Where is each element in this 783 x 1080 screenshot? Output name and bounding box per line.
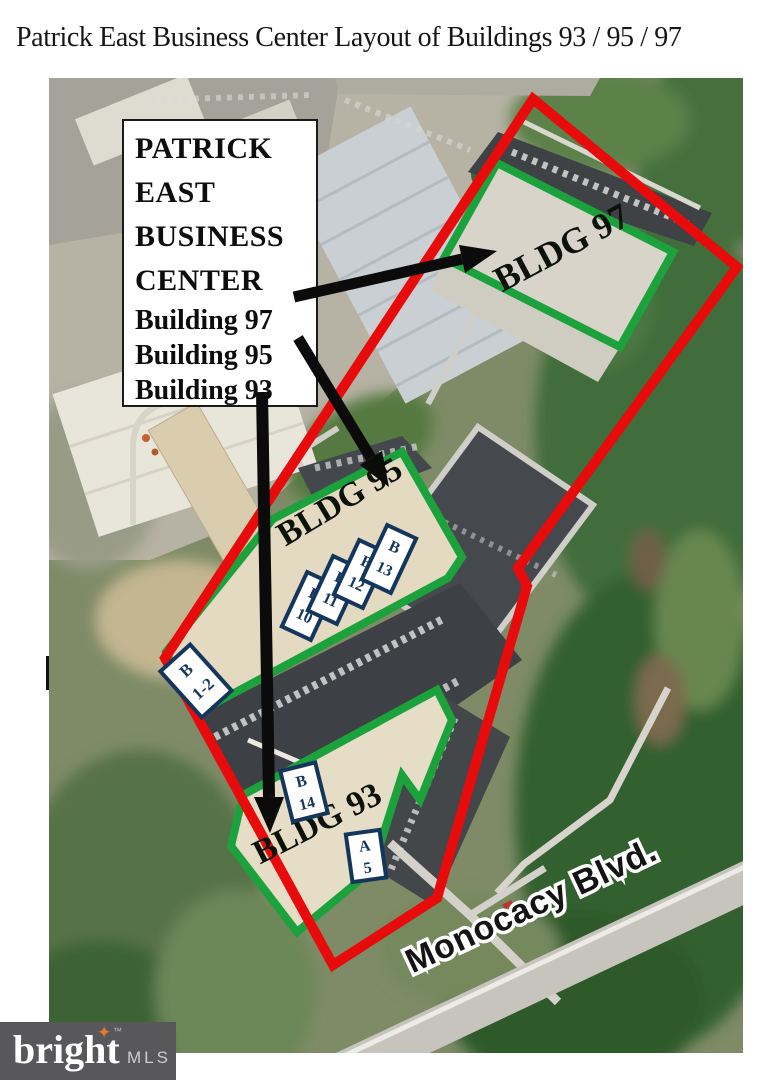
info-box-name-line: PATRICK: [135, 127, 316, 171]
page-title: Patrick East Business Center Layout of B…: [16, 22, 783, 54]
edge-tick-mark: [46, 656, 49, 690]
brightmls-suffix: MLS: [127, 1048, 171, 1068]
listing-photo-page: Patrick East Business Center Layout of B…: [0, 0, 783, 1080]
info-box-building-93: Building 93: [135, 373, 316, 408]
info-box-building-95: Building 95: [135, 338, 316, 373]
top-road: [335, 78, 600, 96]
star-icon: ✦: [97, 1024, 111, 1041]
info-box-building-97: Building 97: [135, 303, 316, 338]
car: [152, 449, 159, 456]
car: [142, 434, 150, 442]
info-box-name-line: EAST: [135, 171, 316, 215]
info-box: PATRICK EAST BUSINESS CENTER Building 97…: [122, 119, 318, 407]
brightmls-logo: bright ✦ ™ MLS: [0, 1022, 176, 1080]
trademark-symbol: ™: [113, 1026, 122, 1036]
info-box-name-line: CENTER: [135, 259, 316, 303]
unit-box-a5: A 5: [346, 830, 386, 882]
info-box-name-line: BUSINESS: [135, 215, 316, 259]
